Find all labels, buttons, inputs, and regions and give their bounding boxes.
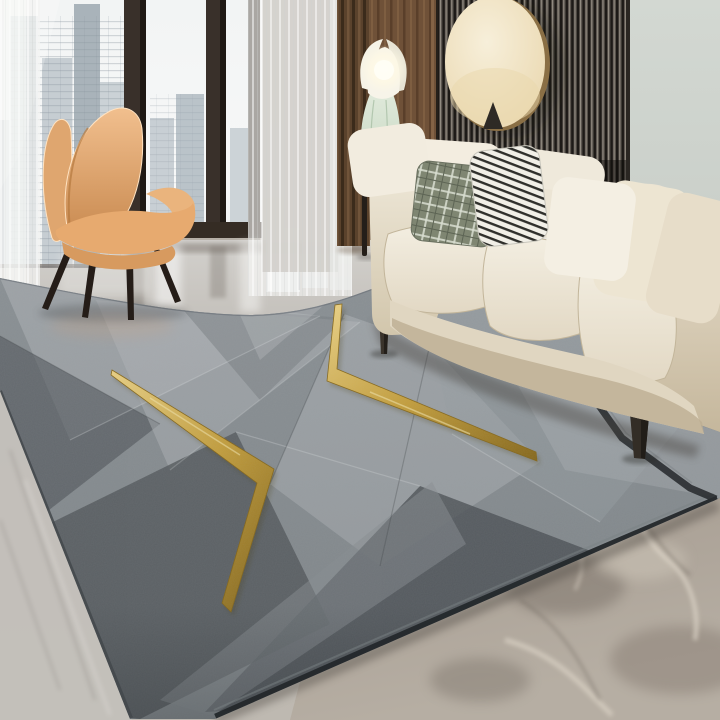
chair-reflection — [50, 314, 174, 338]
pillow-white-mid — [542, 175, 637, 283]
pillow-striped — [468, 144, 549, 248]
mullion-reflection — [210, 246, 226, 298]
sheer-curtain-left — [0, 0, 40, 314]
living-room-photo — [0, 0, 720, 720]
sheer-curtain-right — [248, 0, 352, 296]
lamp-bulb — [374, 60, 394, 80]
